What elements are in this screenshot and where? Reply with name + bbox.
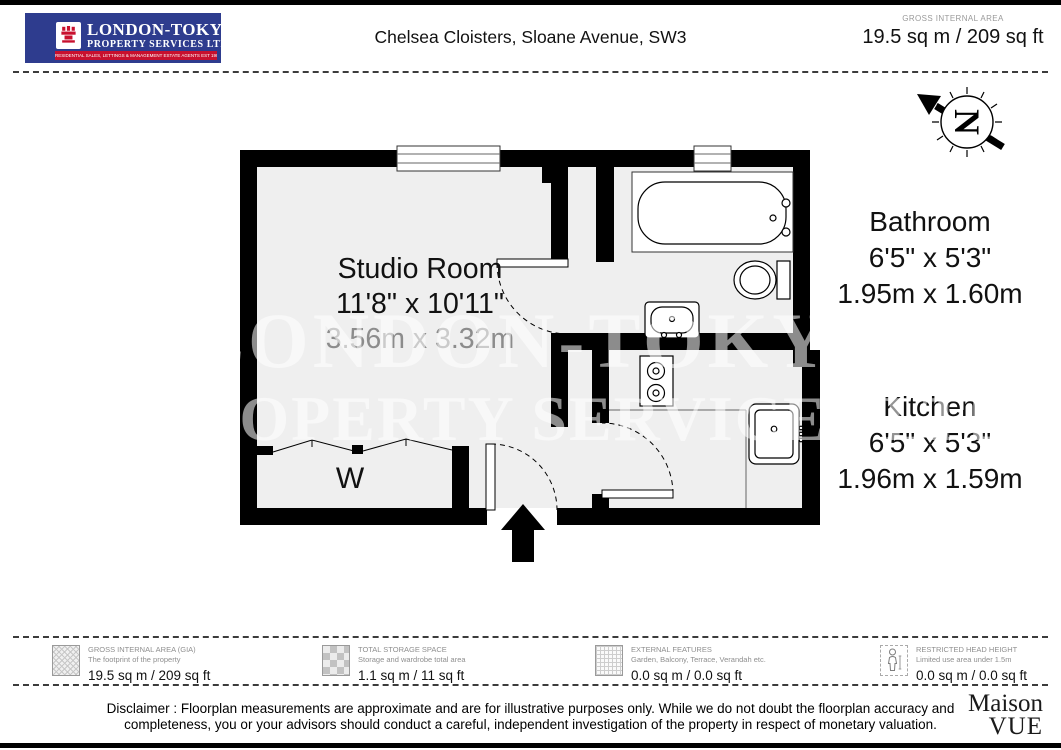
- brand-line2: VUE: [968, 715, 1043, 738]
- legend-title: TOTAL STORAGE SPACE: [358, 645, 466, 655]
- room-size-imperial: 6'5" x 5'3": [815, 425, 1045, 461]
- legend-value: 0.0 sq m / 0.0 sq ft: [631, 668, 766, 683]
- studio-room-label: Studio Room 11'8" x 10'11" 3.56m x 3.32m: [270, 252, 570, 357]
- room-size-metric: 1.95m x 1.60m: [815, 276, 1045, 312]
- legend-subtitle: Storage and wardrobe total area: [358, 655, 466, 665]
- studio-window-icon: [397, 146, 500, 171]
- legend-title: RESTRICTED HEAD HEIGHT: [916, 645, 1027, 655]
- compass-north-letter: N: [947, 109, 987, 135]
- legend-value: 0.0 sq m / 0.0 sq ft: [916, 668, 1027, 683]
- legend-top-divider: [13, 636, 1048, 638]
- legend-bottom-divider: [13, 684, 1048, 686]
- room-name: Kitchen: [815, 389, 1045, 425]
- legend-title: GROSS INTERNAL AREA (GIA): [88, 645, 210, 655]
- legend-subtitle: Limited use area under 1.5m: [916, 655, 1027, 665]
- legend-item-external: EXTERNAL FEATURES Garden, Balcony, Terra…: [595, 645, 766, 683]
- legend-item-storage: TOTAL STORAGE SPACE Storage and wardrobe…: [322, 645, 466, 683]
- disclaimer-text: Disclaimer : Floorplan measurements are …: [96, 701, 966, 733]
- legend-value: 19.5 sq m / 209 sq ft: [88, 668, 210, 683]
- legend-item-head-height: RESTRICTED HEAD HEIGHT Limited use area …: [880, 645, 1027, 683]
- hob-icon: [640, 356, 673, 406]
- kitchen-sink-icon: [749, 404, 803, 464]
- disclaimer: Disclaimer : Floorplan measurements are …: [0, 701, 1061, 733]
- brand-line1: Maison: [968, 692, 1043, 715]
- bathroom-label: Bathroom 6'5" x 5'3" 1.95m x 1.60m: [815, 204, 1045, 312]
- external-swatch-icon: [595, 645, 623, 676]
- legend-subtitle: Garden, Balcony, Terrace, Verandah etc.: [631, 655, 766, 665]
- storage-swatch-icon: [322, 645, 350, 676]
- bathtub-icon: [632, 172, 793, 252]
- floorplan-page: LONDON-TOKYO PROPERTY SERVICES LTD. RESI…: [0, 0, 1061, 750]
- person-icon: [886, 648, 903, 673]
- legend-value: 1.1 sq m / 11 sq ft: [358, 668, 466, 683]
- legend-subtitle: The footprint of the property: [88, 655, 210, 665]
- kitchen-label: Kitchen 6'5" x 5'3" 1.96m x 1.59m: [815, 389, 1045, 497]
- bathroom-window-icon: [694, 146, 731, 171]
- legend-item-gia: GROSS INTERNAL AREA (GIA) The footprint …: [52, 645, 210, 683]
- room-name: Bathroom: [815, 204, 1045, 240]
- room-size-metric: 1.96m x 1.59m: [815, 461, 1045, 497]
- wardrobe-label: W: [300, 462, 400, 496]
- entry-arrow-icon: [501, 504, 545, 562]
- toilet-icon: [734, 261, 790, 299]
- basin-icon: [645, 302, 699, 338]
- room-size-imperial: 6'5" x 5'3": [815, 240, 1045, 276]
- compass-icon: N: [917, 87, 1003, 157]
- room-name: Studio Room: [270, 252, 570, 287]
- restricted-height-swatch-icon: [880, 645, 908, 676]
- gia-swatch-icon: [52, 645, 80, 676]
- room-size-imperial: 11'8" x 10'11": [270, 287, 570, 322]
- maison-vue-logo: Maison VUE: [968, 692, 1043, 738]
- bottom-border: [0, 743, 1061, 748]
- legend-title: EXTERNAL FEATURES: [631, 645, 766, 655]
- room-size-metric: 3.56m x 3.32m: [270, 322, 570, 357]
